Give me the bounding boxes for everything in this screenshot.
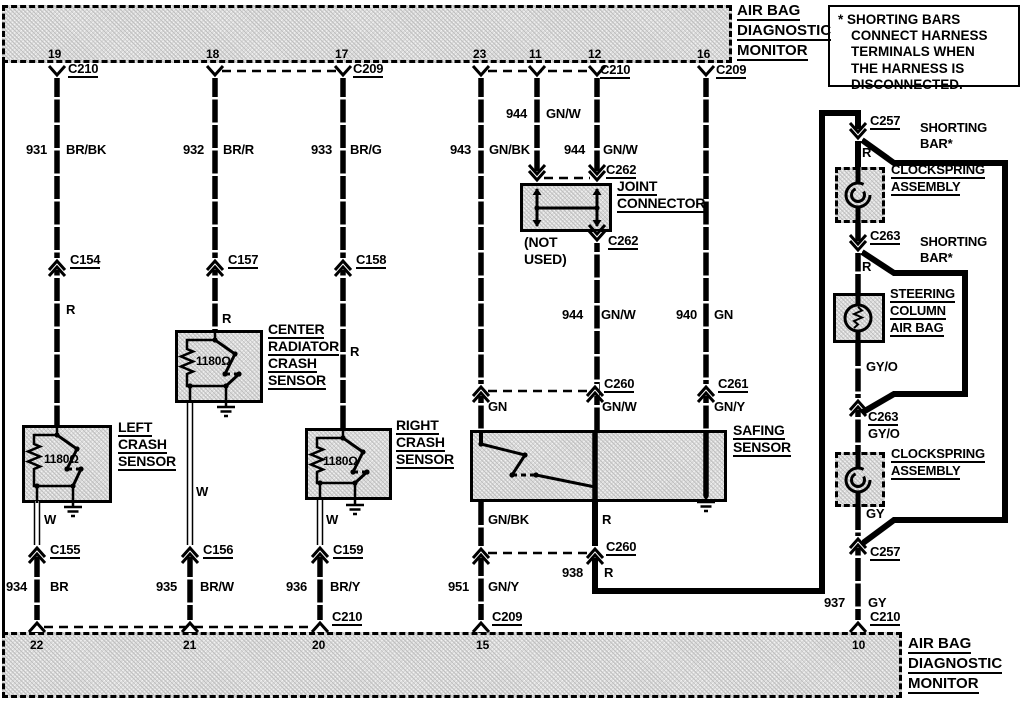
- label-clockspring: CLOCKSPRING: [891, 163, 985, 179]
- junction-dot: [222, 371, 227, 376]
- label-column: COLUMN: [890, 304, 946, 320]
- label-r: R: [66, 303, 75, 316]
- junction-dot: [522, 452, 527, 457]
- label-gn-w: GN/W: [601, 308, 636, 321]
- label-r: R: [604, 566, 613, 579]
- junction-dot: [594, 205, 599, 210]
- bottom-pin-22: 22: [30, 639, 43, 651]
- label-assembly: ASSEMBLY: [891, 180, 960, 196]
- label-br: BR: [50, 580, 68, 593]
- label-c157: C157: [228, 253, 258, 269]
- label-center: CENTER: [268, 323, 324, 339]
- label-933: 933: [311, 143, 332, 156]
- label-c210: C210: [68, 62, 98, 78]
- label-shorting: SHORTING: [920, 121, 987, 134]
- junction-dot: [317, 480, 322, 485]
- label-used: USED): [524, 253, 567, 266]
- label-936: 936: [286, 580, 307, 593]
- label-left: LEFT: [118, 421, 152, 437]
- label-gn-bk: GN/BK: [489, 143, 530, 156]
- top-pin-16: 16: [697, 48, 710, 60]
- label-c159: C159: [333, 543, 363, 559]
- label-c262: C262: [608, 234, 638, 250]
- label-bar: BAR*: [920, 137, 952, 150]
- junction-dot: [350, 469, 355, 474]
- label-c155: C155: [50, 543, 80, 559]
- label-r: R: [602, 513, 611, 526]
- airbag-monitor-top-label: AIR BAG DIAGNOSTIC MONITOR: [737, 3, 831, 63]
- label-c261: C261: [718, 377, 748, 393]
- label-c263: C263: [868, 410, 898, 426]
- label-gn-w: GN/W: [602, 400, 637, 413]
- label-shorting: SHORTING: [920, 235, 987, 248]
- label-gn-w: GN/W: [603, 143, 638, 156]
- title-line: DIAGNOSTIC: [908, 656, 1002, 674]
- junction-dot: [34, 483, 39, 488]
- clockspring-icon-inner: [852, 189, 865, 202]
- label-br-bk: BR/BK: [66, 143, 106, 156]
- label-gy-o: GY/O: [866, 360, 898, 373]
- junction-dot: [509, 472, 514, 477]
- label-gy-o: GY/O: [868, 427, 900, 440]
- title-line: DIAGNOSTIC: [737, 23, 831, 41]
- label-r: R: [862, 146, 871, 159]
- bottom-pin-20: 20: [312, 639, 325, 651]
- label-crash: CRASH: [268, 357, 317, 373]
- label-right: RIGHT: [396, 419, 439, 435]
- junction-dot: [236, 371, 241, 376]
- label-944: 944: [506, 107, 527, 120]
- top-pin-17: 17: [335, 48, 348, 60]
- label-1180: 1180Ω: [323, 455, 358, 468]
- component-internal-line: [854, 307, 862, 328]
- label-gn: GN: [488, 400, 507, 413]
- junction-dot: [54, 432, 59, 437]
- label-934: 934: [6, 580, 27, 593]
- label-air-bag: AIR BAG: [890, 321, 944, 337]
- label-c257: C257: [870, 114, 900, 130]
- label-sensor: SENSOR: [733, 441, 791, 457]
- label-931: 931: [26, 143, 47, 156]
- label-sensor: SENSOR: [268, 374, 326, 390]
- label-sensor: SENSOR: [118, 455, 176, 471]
- junction-dot: [232, 351, 237, 356]
- label-safing: SAFING: [733, 424, 785, 440]
- top-pin-11: 11: [529, 48, 542, 60]
- label-c210: C210: [870, 610, 900, 626]
- airbag-squib-icon: [845, 305, 871, 331]
- airbag-monitor-bottom-label: AIR BAG DIAGNOSTIC MONITOR: [908, 636, 1002, 696]
- junction-dot: [592, 484, 597, 489]
- label-c257: C257: [870, 545, 900, 561]
- top-pin-18: 18: [206, 48, 219, 60]
- ground-icon: [346, 499, 364, 514]
- label-radiator: RADIATOR: [268, 340, 339, 356]
- ground-icon: [64, 501, 82, 516]
- label-w: W: [44, 513, 56, 526]
- junction-dot: [533, 472, 538, 477]
- label-c260: C260: [606, 540, 636, 556]
- label-gn: GN: [714, 308, 733, 321]
- label-937: 937: [824, 596, 845, 609]
- label-932: 932: [183, 143, 204, 156]
- component-internal-line: [226, 374, 239, 386]
- junction-dot: [703, 493, 708, 498]
- junction-dot: [187, 383, 192, 388]
- label-943: 943: [450, 143, 471, 156]
- label-c154: C154: [70, 253, 100, 269]
- label-steering: STEERING: [890, 287, 955, 303]
- label-w: W: [326, 513, 338, 526]
- label-940: 940: [676, 308, 697, 321]
- label-br-g: BR/G: [350, 143, 382, 156]
- component-internal-line: [73, 469, 81, 486]
- junction-dot: [74, 446, 79, 451]
- label-gn-y: GN/Y: [714, 400, 745, 413]
- label-938: 938: [562, 566, 583, 579]
- clockspring-icon: [846, 183, 870, 207]
- label-c260: C260: [604, 377, 634, 393]
- label-c210: C210: [600, 63, 630, 79]
- label-br-w: BR/W: [200, 580, 234, 593]
- label-944: 944: [562, 308, 583, 321]
- junction-dot: [364, 469, 369, 474]
- junction-dot: [340, 435, 345, 440]
- component-internal-line: [320, 483, 355, 500]
- label-gy: GY: [868, 596, 886, 609]
- label-1180: 1180Ω: [196, 355, 231, 368]
- label-br-y: BR/Y: [330, 580, 360, 593]
- label-joint: JOINT: [617, 180, 657, 196]
- junction-dot: [223, 383, 228, 388]
- component-internal-line: [481, 444, 525, 475]
- clockspring-icon: [846, 468, 870, 492]
- label-c209: C209: [492, 610, 522, 626]
- ground-icon: [217, 401, 235, 416]
- label-crash: CRASH: [118, 438, 167, 454]
- component-internal-line: [317, 428, 343, 444]
- label-r: R: [862, 260, 871, 273]
- label-gn-w: GN/W: [546, 107, 581, 120]
- title-line: MONITOR: [737, 43, 808, 61]
- label-clockspring: CLOCKSPRING: [891, 447, 985, 463]
- junction-dot: [352, 480, 357, 485]
- title-line: MONITOR: [908, 676, 979, 694]
- label-gn-bk: GN/BK: [488, 513, 529, 526]
- top-pin-12: 12: [588, 48, 601, 60]
- component-internal-line: [536, 475, 595, 487]
- junction-dot: [212, 337, 217, 342]
- label-c158: C158: [356, 253, 386, 269]
- label-c209: C209: [716, 63, 746, 79]
- label-gy: GY: [866, 507, 884, 520]
- label-935: 935: [156, 580, 177, 593]
- label-951: 951: [448, 580, 469, 593]
- junction-dot: [78, 466, 83, 471]
- wiring-diagram-page: AIR BAG DIAGNOSTIC MONITOR AIR BAG DIAGN…: [0, 0, 1024, 701]
- junction-dot: [64, 466, 69, 471]
- component-internal-line: [34, 425, 57, 441]
- component-internal-line: [187, 330, 215, 346]
- label-connector: CONNECTOR: [617, 197, 705, 213]
- label-gn-y: GN/Y: [488, 580, 519, 593]
- label-r: R: [222, 312, 231, 325]
- junction-dot: [360, 449, 365, 454]
- junction-dot: [70, 483, 75, 488]
- label-c262: C262: [606, 163, 636, 179]
- wire-route: [862, 140, 1005, 543]
- component-internal-line: [190, 386, 226, 403]
- label-1180: 1180Ω: [44, 453, 79, 466]
- top-pin-23: 23: [473, 48, 486, 60]
- label-944: 944: [564, 143, 585, 156]
- label-assembly: ASSEMBLY: [891, 464, 960, 480]
- label-crash: CRASH: [396, 436, 445, 452]
- junction-dot: [478, 441, 483, 446]
- label-c210: C210: [332, 610, 362, 626]
- label-c209: C209: [353, 62, 383, 78]
- label-sensor: SENSOR: [396, 453, 454, 469]
- label-not: (NOT: [524, 236, 557, 249]
- bottom-pin-10: 10: [852, 639, 865, 651]
- clockspring-icon-inner: [852, 474, 865, 487]
- component-internal-line: [37, 486, 73, 503]
- label-bar: BAR*: [920, 251, 952, 264]
- label-w: W: [196, 485, 208, 498]
- label-c156: C156: [203, 543, 233, 559]
- label-c263: C263: [870, 229, 900, 245]
- bottom-pin-21: 21: [183, 639, 196, 651]
- junction-dot: [534, 205, 539, 210]
- title-line: AIR BAG: [908, 636, 971, 654]
- top-pin-19: 19: [48, 48, 61, 60]
- label-r: R: [350, 345, 359, 358]
- title-line: AIR BAG: [737, 3, 800, 21]
- bottom-pin-15: 15: [476, 639, 489, 651]
- label-br-r: BR/R: [223, 143, 254, 156]
